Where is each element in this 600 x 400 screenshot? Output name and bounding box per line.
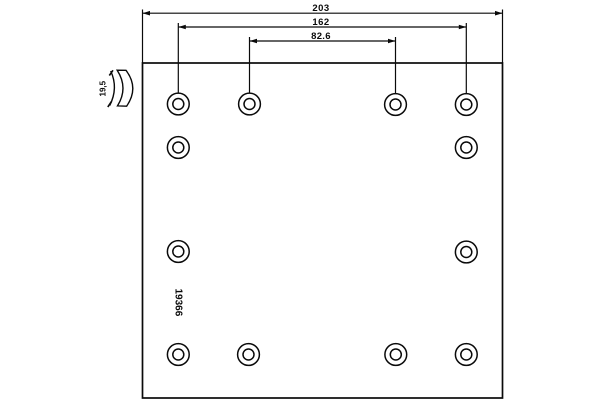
svg-text:82.6: 82.6 <box>311 31 331 42</box>
svg-text:19,5: 19,5 <box>99 80 108 96</box>
svg-text:162: 162 <box>312 17 329 28</box>
svg-text:19366: 19366 <box>172 289 183 317</box>
svg-text:203: 203 <box>312 3 329 14</box>
